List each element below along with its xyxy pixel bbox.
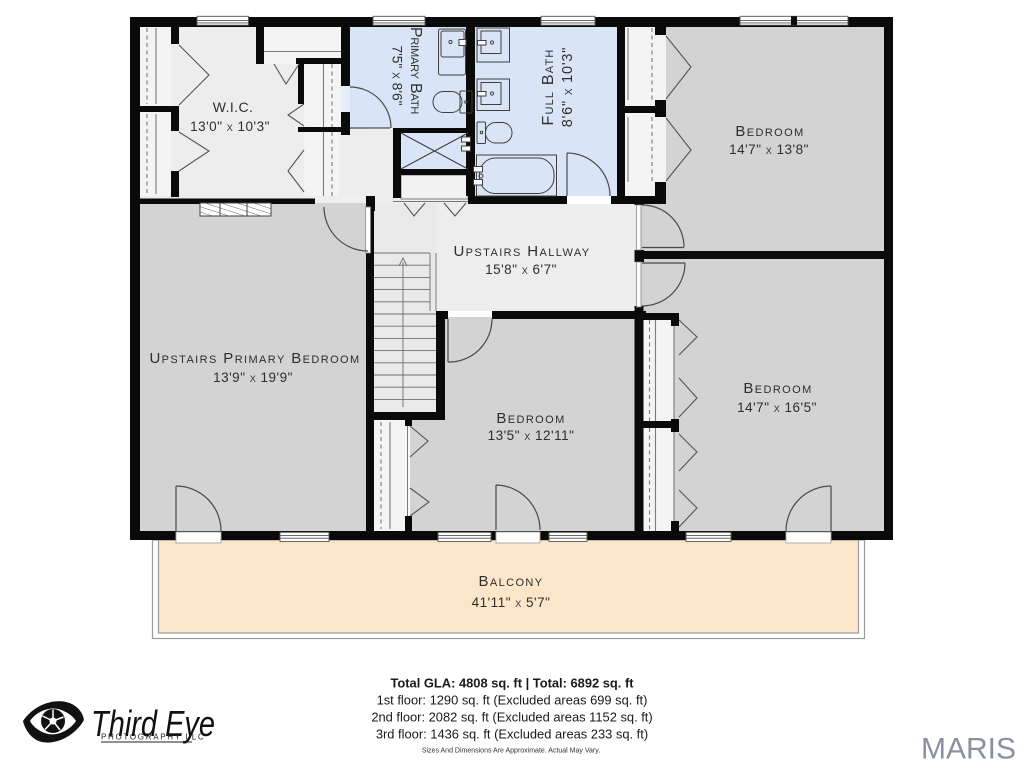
svg-text:15'8" x 6'7": 15'8" x 6'7" xyxy=(485,262,557,277)
svg-text:8'6" x 10'3": 8'6" x 10'3" xyxy=(560,47,576,127)
svg-text:Bedroom: Bedroom xyxy=(735,123,804,140)
svg-text:1st floor: 1290 sq. ft (Exclud: 1st floor: 1290 sq. ft (Excluded areas 6… xyxy=(377,693,648,708)
svg-text:PHOTOGRAPHY LLC: PHOTOGRAPHY LLC xyxy=(101,733,205,742)
svg-text:3rd floor: 1436 sq. ft (Exclud: 3rd floor: 1436 sq. ft (Excluded areas 2… xyxy=(376,727,648,742)
svg-text:13'5" x 12'11": 13'5" x 12'11" xyxy=(488,428,575,443)
svg-text:13'9" x 19'9": 13'9" x 19'9" xyxy=(213,370,293,385)
svg-text:2nd floor: 2082 sq. ft (Exclud: 2nd floor: 2082 sq. ft (Excluded areas 1… xyxy=(371,710,652,725)
svg-text:Sizes And Dimensions Are Appro: Sizes And Dimensions Are Approximate. Ac… xyxy=(422,748,600,755)
svg-text:Full Bath: Full Bath xyxy=(540,48,557,125)
svg-text:Bedroom: Bedroom xyxy=(743,380,812,397)
svg-text:W.I.C.: W.I.C. xyxy=(213,99,254,115)
svg-text:Primary Bath: Primary Bath xyxy=(407,27,424,114)
svg-text:14'7" x 16'5": 14'7" x 16'5" xyxy=(737,400,817,415)
svg-text:Upstairs Primary Bedroom: Upstairs Primary Bedroom xyxy=(149,350,360,367)
svg-text:41'11" x 5'7": 41'11" x 5'7" xyxy=(472,595,551,610)
svg-text:Total GLA: 4808 sq. ft | Total: Total GLA: 4808 sq. ft | Total: 6892 sq.… xyxy=(390,676,634,691)
svg-text:13'0" x 10'3": 13'0" x 10'3" xyxy=(190,119,270,134)
svg-text:Bedroom: Bedroom xyxy=(496,410,565,427)
svg-text:MARIS: MARIS xyxy=(921,733,1016,766)
svg-text:14'7" x 13'8": 14'7" x 13'8" xyxy=(729,142,809,157)
svg-text:Upstairs Hallway: Upstairs Hallway xyxy=(453,243,590,260)
svg-text:7'5" x 8'6": 7'5" x 8'6" xyxy=(390,45,405,105)
svg-text:Balcony: Balcony xyxy=(478,573,543,590)
